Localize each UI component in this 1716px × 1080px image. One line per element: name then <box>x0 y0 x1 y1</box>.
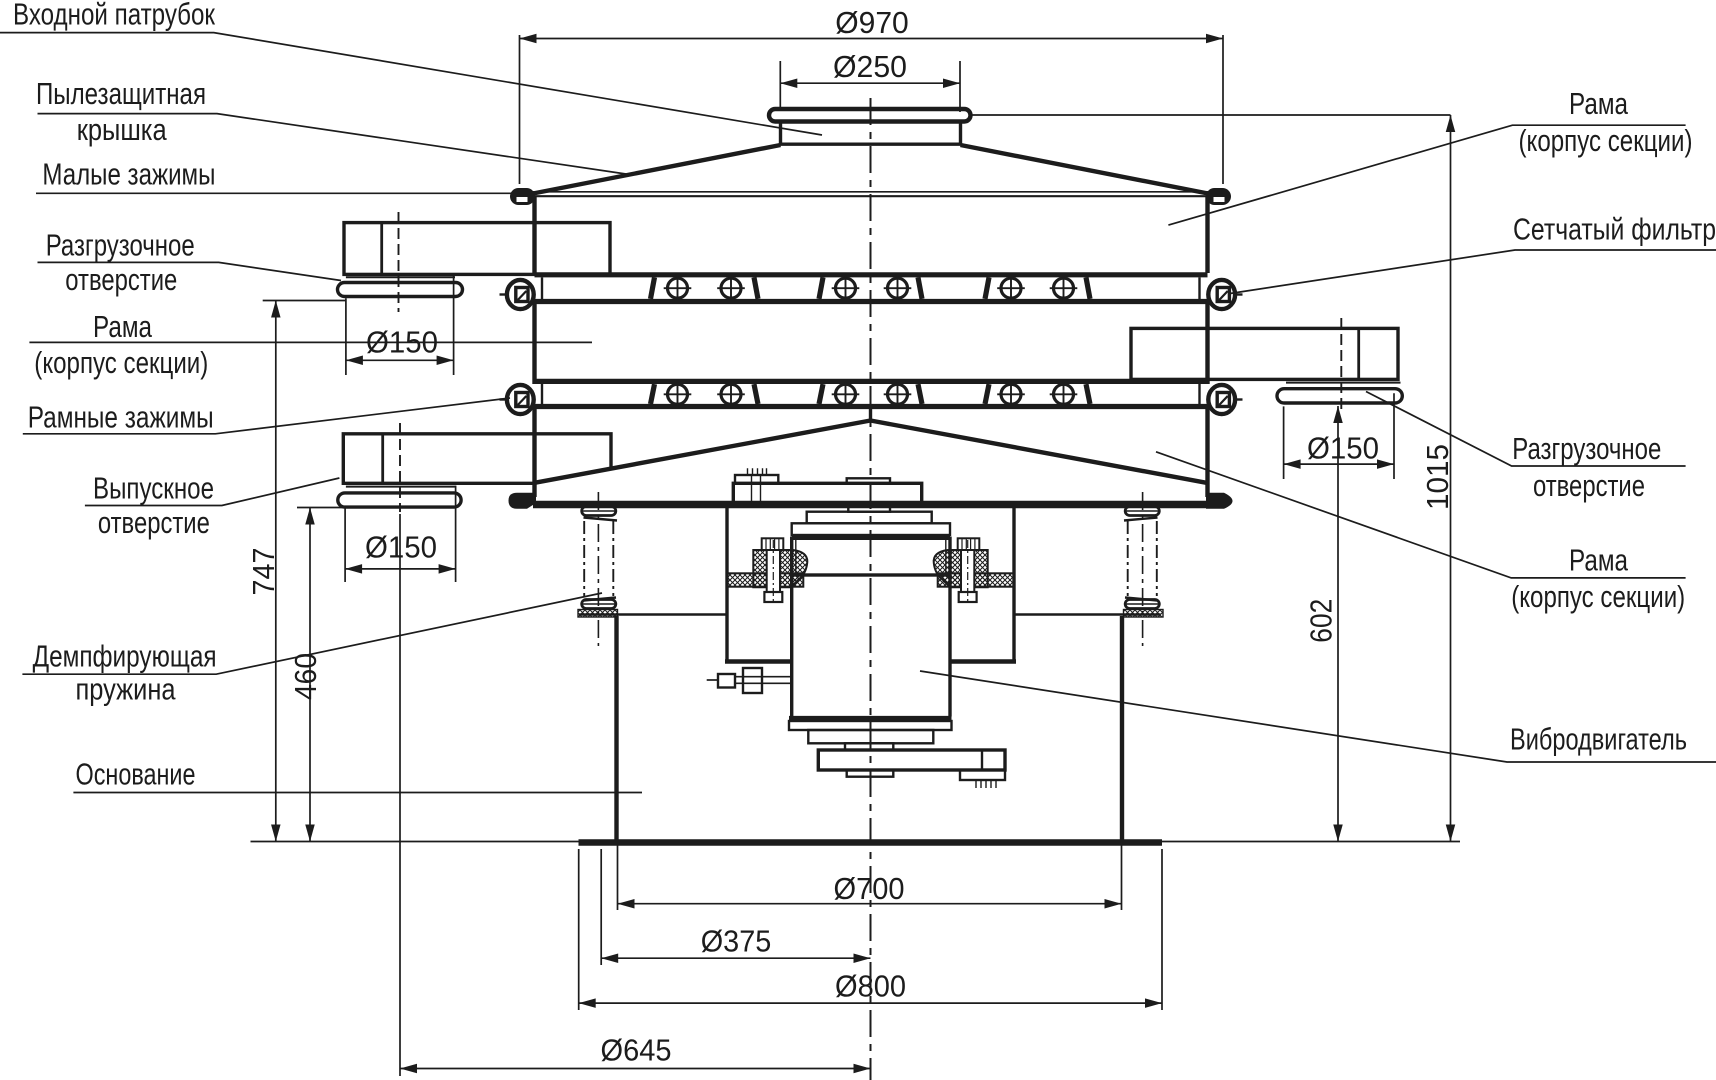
svg-text:Разгрузочное: Разгрузочное <box>1512 431 1661 466</box>
svg-text:Разгрузочное: Разгрузочное <box>46 228 195 263</box>
svg-text:пружина: пружина <box>76 672 177 707</box>
svg-text:Сетчатый фильтр: Сетчатый фильтр <box>1513 212 1716 247</box>
svg-text:Рамные зажимы: Рамные зажимы <box>28 399 214 434</box>
svg-text:Входной патрубок: Входной патрубок <box>13 0 215 32</box>
svg-text:Основание: Основание <box>76 757 196 792</box>
svg-text:Ø970: Ø970 <box>835 5 909 40</box>
svg-text:Ø800: Ø800 <box>835 969 906 1004</box>
svg-text:Рама: Рама <box>1569 543 1629 578</box>
svg-text:Ø250: Ø250 <box>833 49 907 84</box>
svg-text:Пылезащитная: Пылезащитная <box>36 76 206 111</box>
svg-text:Демпфирующая: Демпфирующая <box>33 639 217 674</box>
svg-text:крышка: крышка <box>77 112 168 147</box>
svg-text:(корпус секции): (корпус секции) <box>1511 579 1685 614</box>
svg-text:Рама: Рама <box>93 309 153 344</box>
svg-text:602: 602 <box>1304 599 1339 643</box>
svg-text:Ø700: Ø700 <box>834 871 905 906</box>
svg-text:Рама: Рама <box>1569 86 1629 121</box>
svg-text:747: 747 <box>246 548 281 596</box>
svg-text:460: 460 <box>288 653 323 700</box>
svg-text:Ø645: Ø645 <box>601 1033 672 1068</box>
svg-text:Ø375: Ø375 <box>701 924 772 959</box>
svg-text:1015: 1015 <box>1420 444 1455 510</box>
svg-text:Вибродвигатель: Вибродвигатель <box>1510 722 1687 757</box>
svg-text:Ø150: Ø150 <box>365 530 437 565</box>
svg-text:(корпус секции): (корпус секции) <box>1519 123 1693 158</box>
svg-text:Ø150: Ø150 <box>1307 431 1379 466</box>
svg-text:отверстие: отверстие <box>65 262 177 297</box>
svg-text:Малые зажимы: Малые зажимы <box>42 156 215 191</box>
svg-text:Выпускное: Выпускное <box>93 471 214 506</box>
svg-text:отверстие: отверстие <box>98 505 210 540</box>
svg-text:(корпус секции): (корпус секции) <box>34 345 208 380</box>
svg-text:отверстие: отверстие <box>1533 468 1645 503</box>
